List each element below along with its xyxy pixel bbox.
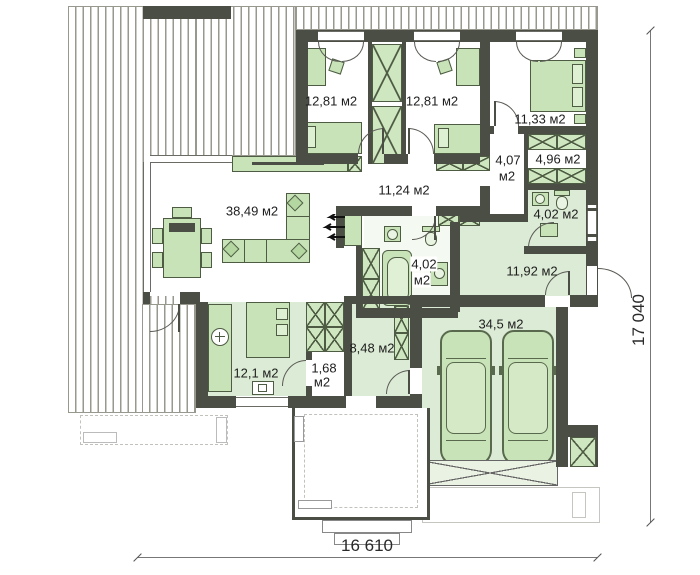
wall bbox=[524, 246, 586, 254]
car bbox=[502, 330, 554, 466]
hob bbox=[276, 308, 288, 320]
wall bbox=[196, 302, 208, 408]
window bbox=[318, 31, 364, 41]
wall bbox=[524, 184, 586, 190]
wall bbox=[524, 134, 528, 188]
wall bbox=[410, 295, 545, 307]
sofa-seam bbox=[266, 240, 267, 262]
room-label-utility: 11,92 м2 bbox=[506, 264, 557, 279]
porch-column bbox=[294, 416, 304, 442]
garage-cabinet bbox=[570, 437, 596, 467]
room-label-corridor-l1: 4,07 bbox=[495, 153, 520, 168]
sink-cross bbox=[219, 332, 220, 342]
wardrobe-cabinet bbox=[306, 302, 325, 327]
desk bbox=[456, 48, 480, 86]
room-label-corridor-l2: м2 bbox=[499, 169, 515, 184]
room-label-bath-mid-l2: м2 bbox=[413, 273, 431, 288]
driveway-pier bbox=[572, 492, 586, 518]
room-label-kitchen: 12,1 м2 bbox=[233, 366, 278, 381]
door-leaf bbox=[408, 128, 410, 154]
wardrobe-cabinet bbox=[325, 327, 344, 352]
door-arc bbox=[598, 268, 632, 298]
wall bbox=[556, 437, 568, 467]
room-label-wardrobe: 4,96 м2 bbox=[535, 152, 580, 167]
wall bbox=[376, 396, 422, 408]
pillow bbox=[572, 64, 583, 84]
pergola-strip bbox=[296, 6, 598, 30]
wall bbox=[288, 396, 310, 408]
nightstand bbox=[574, 114, 586, 124]
chair bbox=[201, 228, 212, 244]
room-label-bedroom1: 12,81 м2 bbox=[305, 94, 357, 109]
wardrobe-cabinet bbox=[362, 248, 380, 279]
dishwasher-inner bbox=[258, 384, 267, 392]
wardrobe-cabinet bbox=[394, 333, 409, 360]
room-label-pantry-l1: 1,68 bbox=[310, 361, 337, 376]
sink-bowl bbox=[387, 229, 398, 240]
room-label-entry: 8,48 м2 bbox=[349, 341, 394, 356]
room-label-bath-mid-l1: 4,02 bbox=[410, 257, 437, 272]
wardrobe-cabinet bbox=[528, 134, 557, 150]
pillow bbox=[438, 128, 449, 148]
porch-mat bbox=[298, 500, 332, 509]
window-tick bbox=[587, 234, 597, 237]
dimension-bottom: 16 610 bbox=[341, 536, 393, 556]
wall bbox=[480, 30, 490, 146]
kitchen-counter bbox=[208, 304, 232, 392]
porch-steps bbox=[322, 520, 412, 533]
chair bbox=[172, 207, 192, 218]
wall bbox=[340, 206, 412, 216]
hob bbox=[276, 324, 288, 336]
dimension-line-right bbox=[650, 30, 651, 523]
fireplace-icon bbox=[318, 214, 346, 246]
wall bbox=[460, 214, 528, 222]
wardrobe-cabinet bbox=[372, 44, 402, 102]
wardrobe-cabinet bbox=[557, 168, 586, 184]
wall bbox=[143, 292, 150, 304]
wall bbox=[306, 386, 312, 396]
wall bbox=[384, 154, 408, 164]
wardrobe-cabinet bbox=[306, 327, 325, 352]
chair bbox=[201, 252, 212, 268]
wall bbox=[180, 292, 200, 304]
door-leaf bbox=[178, 304, 180, 332]
porch-inner bbox=[304, 414, 418, 508]
window bbox=[516, 31, 562, 41]
wardrobe-cabinet bbox=[362, 279, 380, 310]
garage-door bbox=[422, 460, 558, 486]
sofa-seam bbox=[287, 216, 309, 217]
sink-cross bbox=[215, 336, 225, 337]
room-label-bedroom3: 11,33 м2 bbox=[514, 112, 565, 127]
wall bbox=[480, 186, 490, 214]
pillow bbox=[572, 87, 583, 107]
car bbox=[440, 330, 492, 466]
sofa-seam bbox=[244, 240, 245, 262]
window-band bbox=[143, 162, 151, 292]
terrace-top bbox=[196, 6, 296, 156]
wall bbox=[296, 154, 358, 164]
wall bbox=[556, 425, 598, 437]
wardrobe-cabinet bbox=[528, 168, 557, 184]
room-label-bath-top: 4,02 м2 bbox=[533, 207, 578, 222]
window bbox=[414, 31, 460, 41]
wall bbox=[434, 154, 480, 164]
dimension-right: 17 040 bbox=[629, 294, 649, 346]
chair bbox=[152, 252, 163, 268]
terrace-step bbox=[83, 432, 117, 443]
wall bbox=[480, 146, 490, 156]
wall bbox=[556, 307, 568, 425]
door-leaf bbox=[434, 216, 436, 240]
wall bbox=[352, 296, 410, 304]
window-band bbox=[150, 155, 232, 163]
terrace-pier bbox=[216, 417, 227, 443]
wall bbox=[356, 308, 458, 318]
dimension-line-bottom bbox=[137, 557, 597, 558]
wall bbox=[410, 307, 422, 368]
room-label-bedroom2: 12,81 м2 bbox=[406, 94, 458, 109]
wall bbox=[596, 437, 598, 467]
window bbox=[236, 397, 288, 407]
room-label-pantry-l2: м2 bbox=[313, 375, 331, 390]
window-tick bbox=[587, 208, 597, 211]
wall bbox=[570, 295, 598, 307]
door-leaf bbox=[568, 271, 570, 295]
nightstand bbox=[574, 48, 586, 58]
room-label-garage: 34,5 м2 bbox=[478, 317, 523, 332]
table-runner bbox=[169, 223, 195, 232]
kitchen-sink bbox=[211, 328, 229, 346]
wardrobe-cabinet bbox=[557, 134, 586, 150]
wall bbox=[196, 396, 236, 408]
wall bbox=[518, 126, 586, 134]
wall bbox=[586, 30, 598, 302]
door-leaf bbox=[408, 370, 410, 394]
wall bbox=[490, 126, 494, 134]
wall bbox=[310, 396, 346, 408]
wall bbox=[306, 352, 312, 360]
door-leaf bbox=[382, 128, 384, 154]
terrace-wall-segment bbox=[143, 6, 231, 19]
room-label-hall: 11,24 м2 bbox=[378, 183, 429, 198]
room-label-living: 38,49 м2 bbox=[226, 204, 278, 219]
wardrobe-cabinet bbox=[325, 302, 344, 327]
door-leaf bbox=[494, 101, 496, 126]
door-gap bbox=[587, 266, 597, 298]
chair bbox=[152, 228, 163, 244]
sink-bowl bbox=[535, 194, 545, 204]
floor-plan: 12,81 м2 12,81 м2 11,33 м2 4,96 м2 4,07 … bbox=[0, 0, 700, 575]
